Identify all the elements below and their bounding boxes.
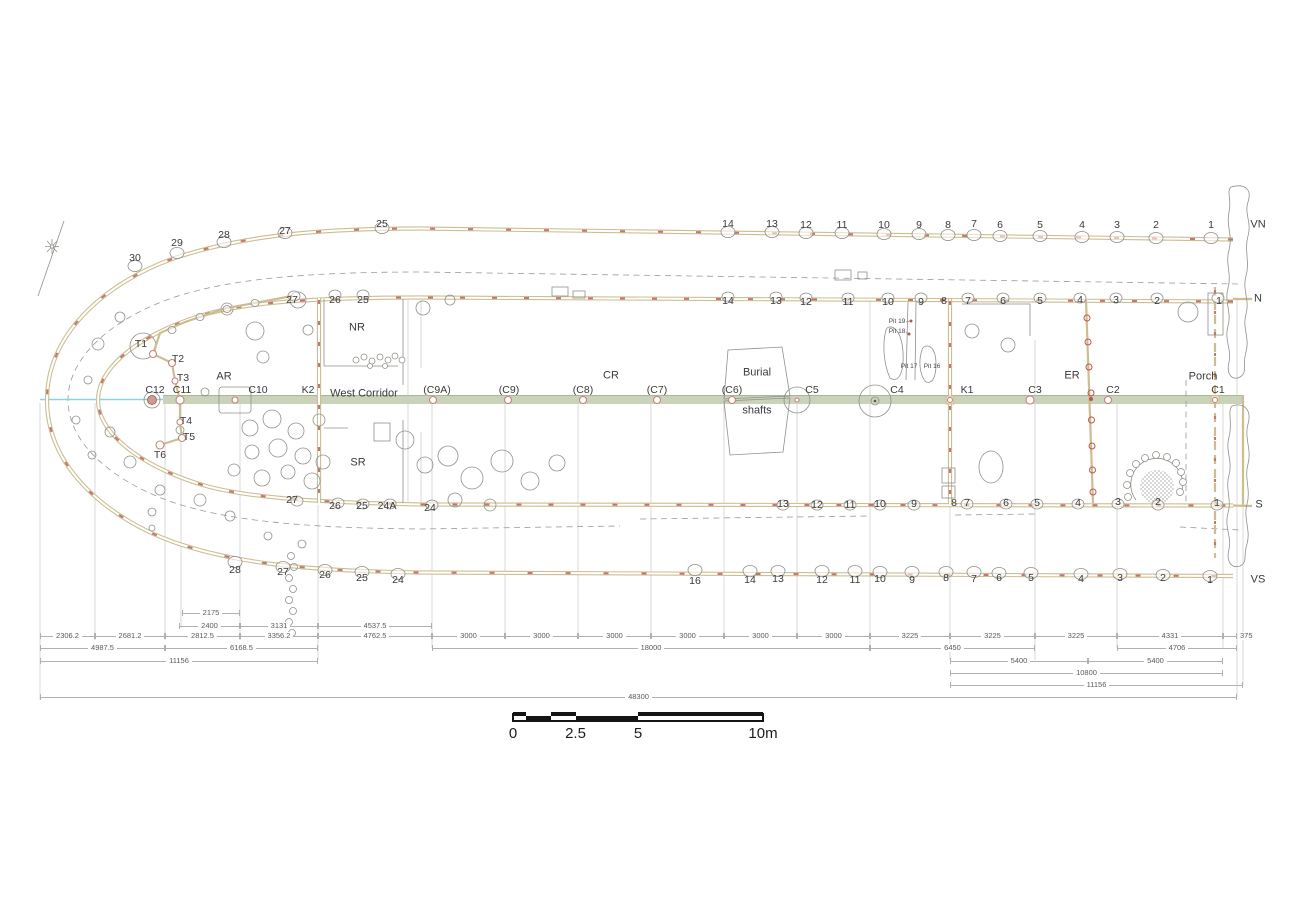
dimension-value: 375: [1240, 632, 1253, 640]
dimension-3000: 3000: [578, 632, 651, 640]
scale-bar-block: [638, 712, 763, 716]
dimension-value: 4987.5: [88, 644, 117, 652]
dimension-2175: 2175: [182, 609, 240, 617]
scale-label-10m: 10m: [748, 725, 777, 742]
dimension-value: 3000: [676, 632, 699, 640]
dimension-layer: 2175240031314537.52306.22681.22812.53356…: [0, 0, 1300, 919]
dimension-value: 2306.2: [53, 632, 82, 640]
dimension-4987.5: 4987.5: [40, 644, 165, 652]
dimension-value: 6450: [941, 644, 964, 652]
dimension-value: 4537.5: [361, 622, 390, 630]
dimension-6168.5: 6168.5: [165, 644, 318, 652]
dimension-value: 3225: [899, 632, 922, 640]
dimension-value: 3000: [603, 632, 626, 640]
scale-label-5: 5: [634, 725, 642, 742]
dimension-value: 5400: [1144, 657, 1167, 665]
dimension-48300: 48300: [40, 693, 1237, 701]
dimension-3000: 3000: [797, 632, 870, 640]
dimension-11156: 11156: [950, 681, 1243, 689]
dimension-5400: 5400: [950, 657, 1088, 665]
dimension-value: 2812.5: [188, 632, 217, 640]
dimension-value: 3000: [457, 632, 480, 640]
dimension-value: 4762.5: [361, 632, 390, 640]
dimension-3000: 3000: [432, 632, 505, 640]
dimension-value: 4331: [1159, 632, 1182, 640]
dimension-value: 3356.2: [265, 632, 294, 640]
dimension-2681.2: 2681.2: [95, 632, 165, 640]
dimension-value: 3131: [268, 622, 291, 630]
dimension-3225: 3225: [950, 632, 1035, 640]
scale-label-0: 0: [509, 725, 517, 742]
scale-bar-block: [513, 712, 526, 716]
dimension-2400: 2400: [179, 622, 240, 630]
dimension-375: 375: [1223, 632, 1237, 640]
dimension-10800: 10800: [950, 669, 1223, 677]
dimension-2812.5: 2812.5: [165, 632, 240, 640]
dimension-value: 2681.2: [116, 632, 145, 640]
dimension-value: 48300: [625, 693, 652, 701]
dimension-value: 3225: [981, 632, 1004, 640]
dimension-2306.2: 2306.2: [40, 632, 95, 640]
dimension-value: 18000: [638, 644, 665, 652]
dimension-value: 5400: [1008, 657, 1031, 665]
dimension-3225: 3225: [1035, 632, 1117, 640]
dimension-11156: 11156: [40, 657, 318, 665]
dimension-3000: 3000: [505, 632, 578, 640]
dimension-6450: 6450: [870, 644, 1035, 652]
dimension-value: 10800: [1073, 669, 1100, 677]
dimension-3356.2: 3356.2: [240, 632, 318, 640]
scale-bar: 02.5510m: [513, 712, 763, 746]
scale-bar-tick: [762, 713, 764, 722]
dimension-value: 2175: [200, 609, 223, 617]
dimension-value: 6168.5: [227, 644, 256, 652]
dimension-value: 3000: [749, 632, 772, 640]
dimension-value: 3000: [822, 632, 845, 640]
dimension-3131: 3131: [240, 622, 318, 630]
dimension-value: 2400: [198, 622, 221, 630]
dimension-5400: 5400: [1088, 657, 1223, 665]
dimension-4706: 4706: [1117, 644, 1237, 652]
scale-bar-block: [526, 716, 551, 720]
dimension-3225: 3225: [870, 632, 950, 640]
dimension-3000: 3000: [724, 632, 797, 640]
dimension-value: 11156: [1084, 681, 1110, 689]
dimension-value: 3000: [530, 632, 553, 640]
dimension-4331: 4331: [1117, 632, 1223, 640]
dimension-value: 4706: [1166, 644, 1189, 652]
scale-bar-tick: [512, 713, 514, 722]
dimension-value: 3225: [1065, 632, 1088, 640]
dimension-3000: 3000: [651, 632, 724, 640]
dimension-value: 11156: [166, 657, 192, 665]
scale-label-2.5: 2.5: [565, 725, 586, 742]
scale-bar-baseline: [513, 720, 763, 722]
site-plan-canvas: 3029282725141312111098765432127262514131…: [0, 0, 1300, 919]
dimension-18000: 18000: [432, 644, 870, 652]
scale-bar-block: [551, 712, 576, 716]
dimension-4537.5: 4537.5: [318, 622, 432, 630]
scale-bar-block: [576, 716, 639, 720]
dimension-4762.5: 4762.5: [318, 632, 432, 640]
